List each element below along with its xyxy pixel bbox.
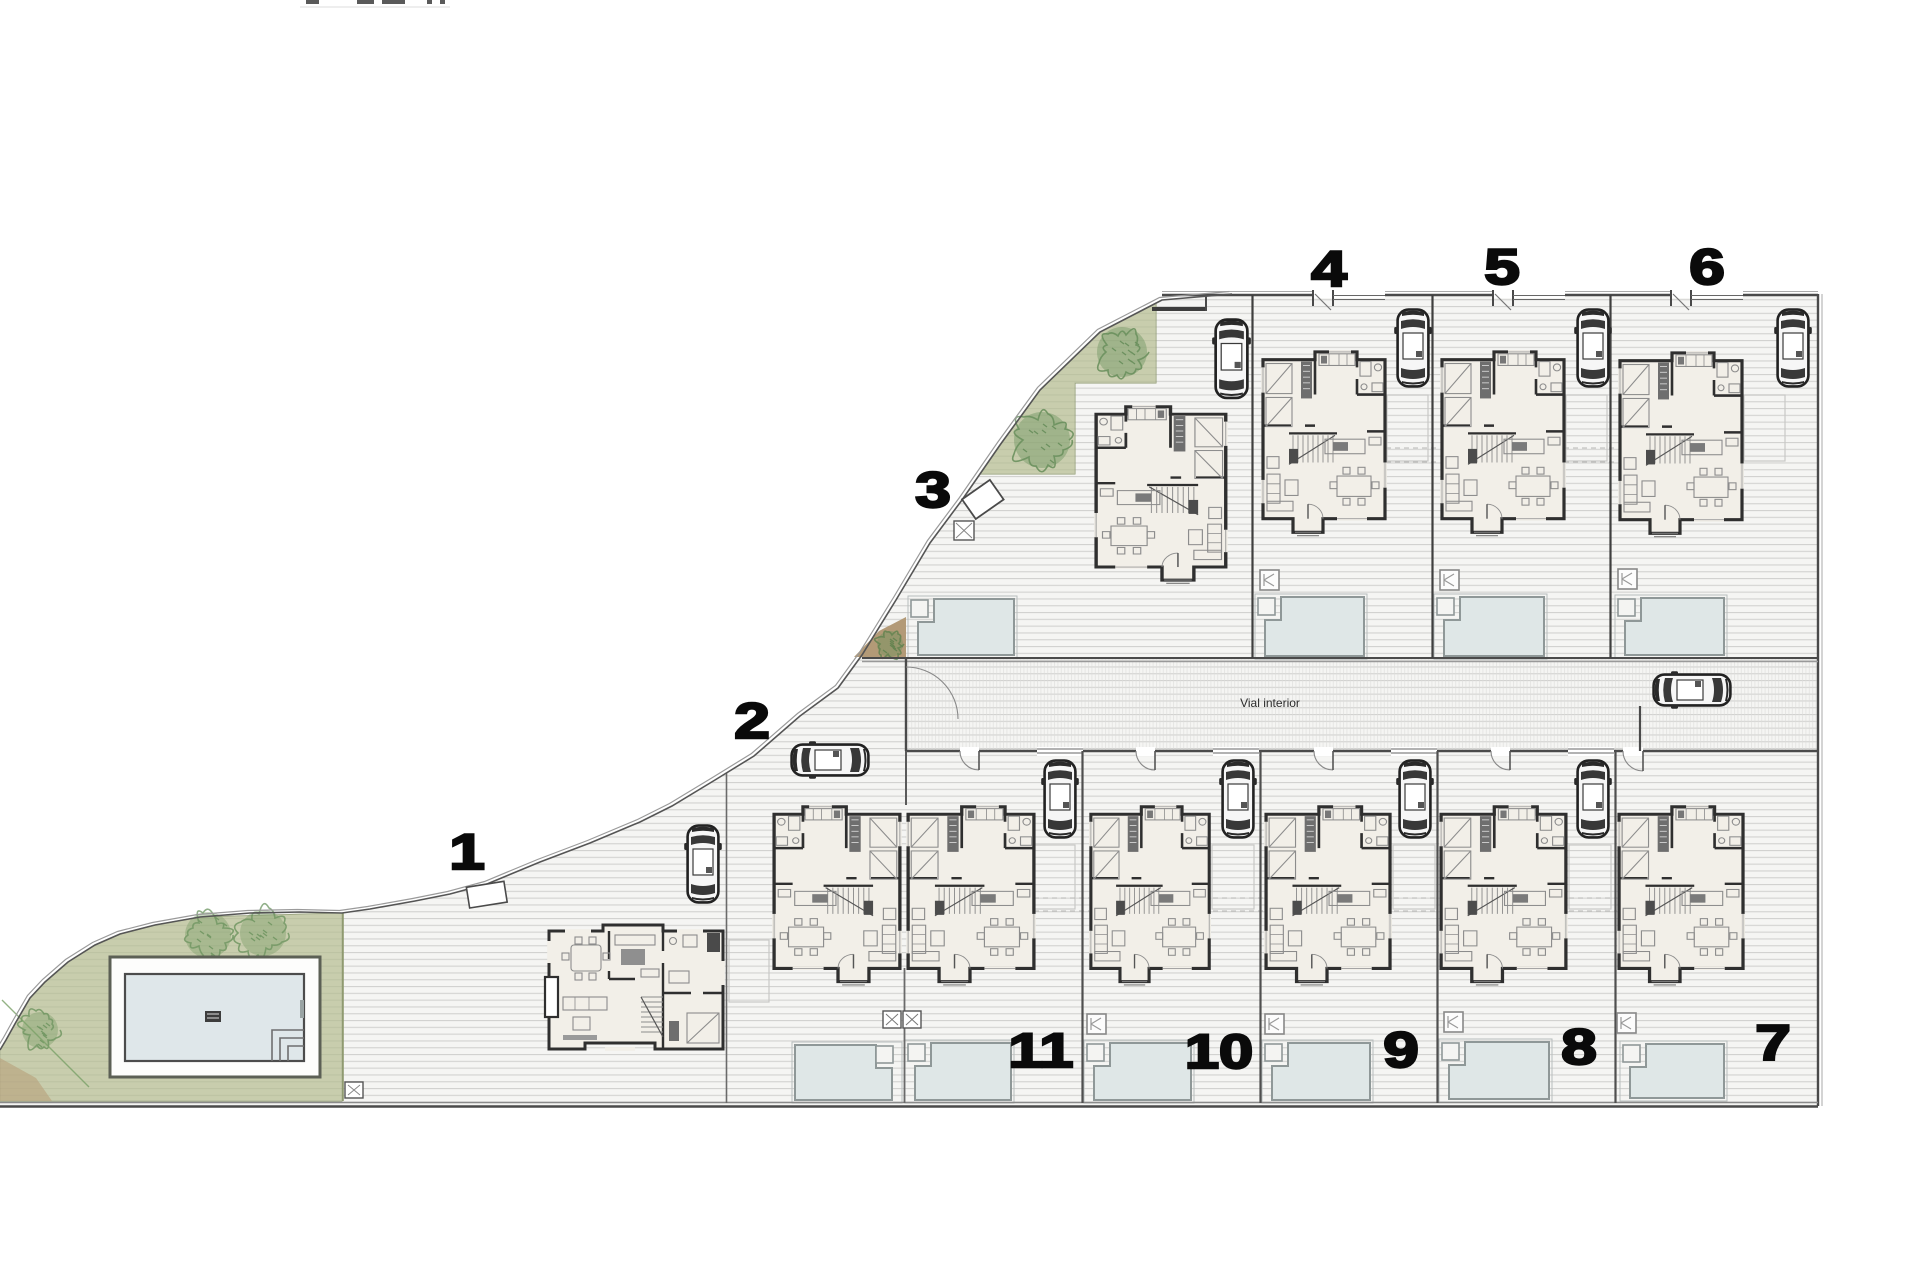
svg-text:2: 2 (734, 694, 770, 750)
svg-text:8: 8 (1561, 1020, 1597, 1076)
svg-text:3: 3 (915, 463, 951, 519)
svg-text:5: 5 (1484, 240, 1520, 296)
svg-text:10: 10 (1185, 1024, 1253, 1078)
svg-text:1: 1 (449, 825, 485, 881)
svg-text:4: 4 (1311, 242, 1347, 298)
svg-text:6: 6 (1689, 240, 1725, 296)
svg-text:7: 7 (1755, 1016, 1791, 1072)
svg-text:9: 9 (1383, 1023, 1419, 1079)
svg-text:Vial interior: Vial interior (1240, 696, 1300, 710)
svg-text:11: 11 (1009, 1023, 1074, 1077)
